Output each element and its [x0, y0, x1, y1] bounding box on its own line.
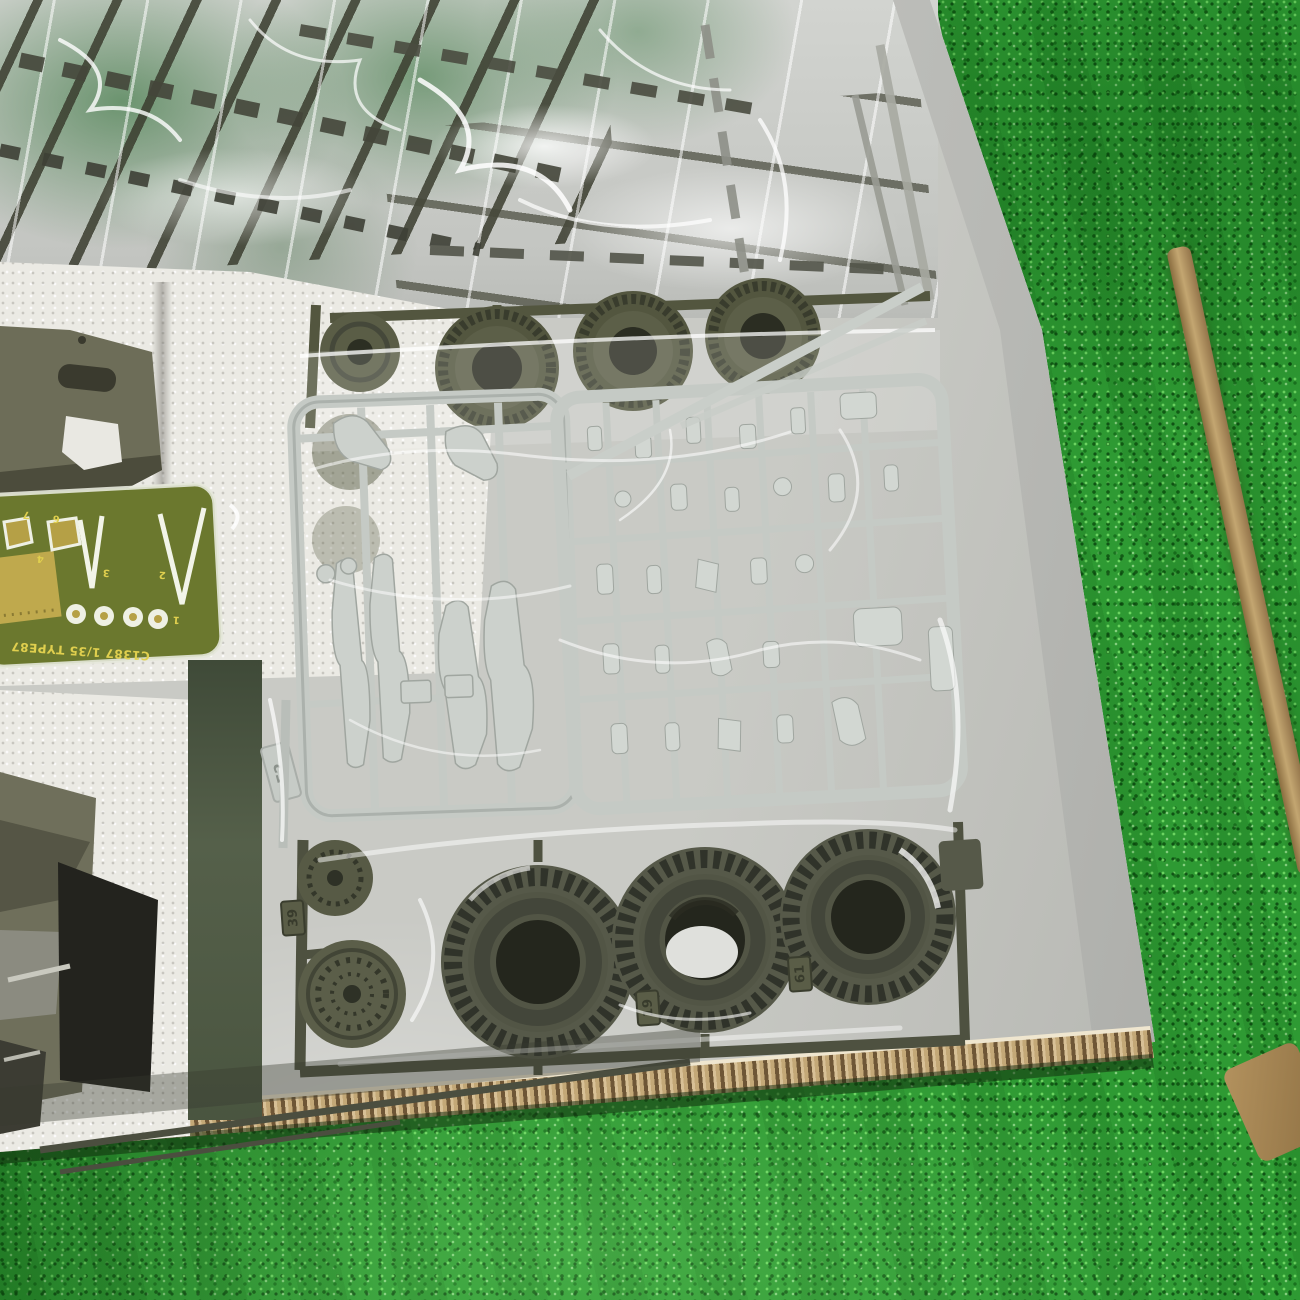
sprue-tag-19: 19 [636, 990, 660, 1025]
svg-text:2: 2 [158, 569, 166, 580]
sprue-tag-61: 61 [788, 956, 812, 991]
svg-text:4: 4 [36, 553, 44, 564]
kit-contents-art: 7 6 4 3 2 1 C1387 1/35 TYPE87 [0, 0, 1300, 1300]
pe-brass-plate [0, 551, 62, 627]
photo-etch-fret: 7 6 4 3 2 1 C1387 1/35 TYPE87 [0, 483, 238, 667]
ribbed-wheel-hub [298, 940, 406, 1048]
svg-text:7: 7 [22, 509, 30, 520]
big-tire-1 [441, 865, 635, 1059]
olive-hull-part [0, 326, 162, 505]
svg-text:3: 3 [102, 567, 110, 578]
small-hub-top [297, 840, 373, 916]
svg-text:6: 6 [52, 513, 60, 524]
olive-wheel-sprue-bottom [40, 822, 984, 1172]
sprue-tag-39-text: 39 [285, 908, 301, 927]
sprue-tag-61-text: 61 [792, 964, 808, 983]
svg-text:1: 1 [172, 614, 180, 625]
sprue-tag-39: 39 [281, 900, 305, 935]
photo-model-kit-box: 7 6 4 3 2 1 C1387 1/35 TYPE87 [0, 0, 1300, 1300]
